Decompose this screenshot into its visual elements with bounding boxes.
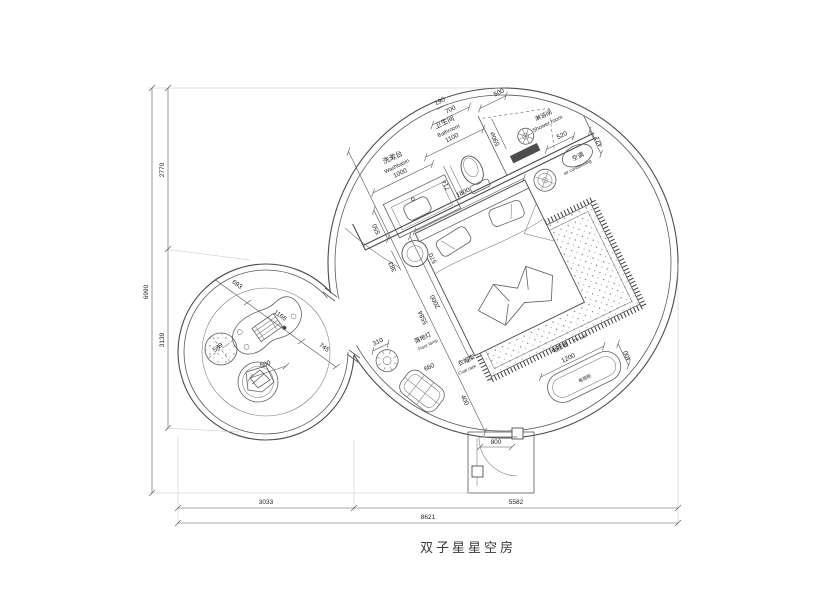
tv-wall-depth: 400	[622, 349, 633, 362]
overall-height: 6990	[143, 284, 150, 299]
lounge-desk-width: 1166	[272, 309, 288, 323]
toilet	[457, 152, 491, 194]
coat-rack-width: 660	[423, 362, 436, 373]
entry-door-width: 800	[491, 439, 502, 446]
coat-rack: 660 衣帽架 Coat rack 400	[396, 353, 478, 416]
tv-cabinet-label: 电视柜	[577, 372, 593, 384]
drawing-title: 双子星星空房	[420, 540, 516, 555]
main-room-interior: 383 570	[284, 42, 699, 470]
exhaust-fan-icon	[530, 166, 559, 195]
door-jamb-lower	[472, 466, 483, 477]
width-right: 5582	[509, 499, 524, 506]
width-left: 3033	[259, 499, 274, 506]
sink-basin	[402, 195, 433, 222]
overall-width: 8621	[421, 514, 436, 521]
chair-width: 500	[259, 359, 272, 369]
lounge-chair: 500	[238, 359, 289, 402]
pouf: 589	[200, 328, 242, 370]
room-diagonal-dim: 5584	[417, 309, 430, 325]
lounge-seg-left: 693	[230, 279, 243, 291]
floor-plan-canvas: 800	[0, 0, 837, 592]
shower-bench	[510, 143, 540, 163]
height-upper: 2770	[159, 162, 166, 177]
bed-length: 2000	[429, 293, 442, 309]
chair-cushion	[246, 366, 274, 392]
lounge-interior: 589 500 693 1166 745	[200, 277, 340, 402]
kidney-desk	[225, 289, 309, 364]
lounge-seg-right: 745	[317, 342, 330, 354]
air-conditioner: 空调 air conditioning	[555, 140, 598, 177]
shower-diameter: 590⌀	[489, 131, 502, 147]
coat-rack-depth: 400	[459, 394, 470, 407]
floor-plan-drawing: 800	[0, 0, 837, 592]
tv-wall-width: 1200	[560, 352, 576, 365]
height-lower: 3139	[159, 332, 166, 347]
